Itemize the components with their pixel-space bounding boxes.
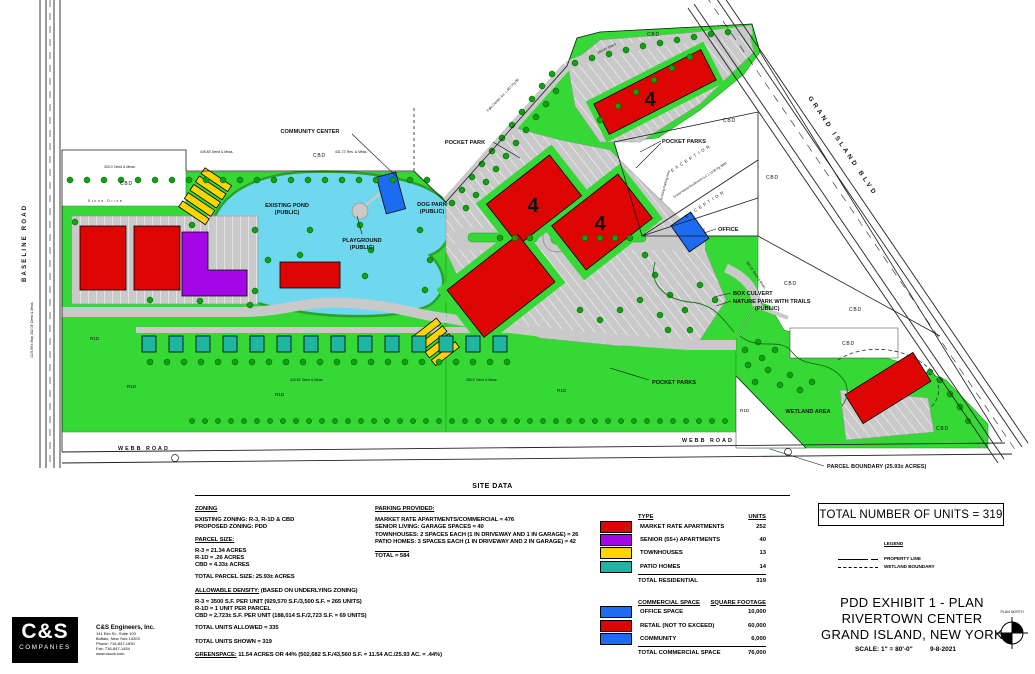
exception-label: EXCEPTION	[684, 189, 727, 219]
commercial-row-value: 6,000	[751, 636, 766, 642]
dimension-text: 431.72' Res. & Meas.	[335, 150, 367, 154]
map-label-nature-park: NATURE PARK WITH TRAILS	[733, 299, 811, 305]
unit-table-row: MARKET RATE APARTMENTS 252	[600, 520, 766, 533]
map-label-playground: PLAYGROUND	[342, 238, 381, 244]
total-units-allowed: TOTAL UNITS ALLOWED = 335	[195, 625, 442, 632]
deed-note: Falls Center, Inc. L 857 Pg 88	[486, 78, 520, 113]
map-label-existing-pond-public: (PUBLIC)	[275, 210, 300, 216]
patio-home-swatch	[600, 561, 632, 573]
dimension-text: 435.83' Deed & Meas.	[200, 150, 234, 154]
scale-note: SCALE: 1" = 80'-0"	[855, 646, 913, 653]
wetland-boundary-sample	[838, 567, 878, 568]
unit-row-value: 14	[759, 564, 766, 570]
map-label-dog-park-public: (PUBLIC)	[420, 209, 445, 215]
map-label-pocket-park: POCKET PARK	[445, 140, 485, 146]
zone-label-r1d: R1D	[557, 388, 567, 393]
unit-table-header-units: UNITS	[748, 514, 766, 520]
zone-label-cbd: CBD	[784, 281, 797, 287]
parking-line: PATIO HOMES: 3 SPACES EACH (1 IN DRIVEWA…	[375, 539, 578, 546]
firm-info: C&S Engineers, Inc. 141 Elm St., Suite 1…	[96, 624, 155, 657]
map-label-pocket-parks-north: POCKET PARKS	[662, 139, 706, 145]
dimension-text: 418.82' Deed & Meas.	[290, 378, 324, 382]
total-residential-label: TOTAL RESIDENTIAL	[638, 578, 756, 584]
site-plan-map: COMMUNITY CENTER POCKET PARK POCKET PARK…	[0, 0, 1035, 492]
zone-label-cbd: CBD	[936, 426, 949, 432]
commercial-table-row: RETAIL (NOT TO EXCEED) 60,000	[600, 619, 766, 632]
north-arrow: PLAN NORTH	[992, 606, 1032, 656]
unit-row-value: 40	[759, 537, 766, 543]
existing-parking-note: Existing Parking Area	[659, 170, 671, 201]
legend-heading: LEGEND	[884, 541, 903, 546]
zone-label-cbd: CBD	[313, 153, 326, 159]
community-swatch	[600, 633, 632, 645]
road-label-baseline: BASELINE ROAD	[22, 204, 28, 282]
north-arrow-label: PLAN NORTH	[1000, 610, 1024, 614]
density-line: R-1D = 1 UNIT PER PARCEL	[195, 606, 442, 613]
map-label-playground-public: (PUBLIC)	[350, 245, 375, 251]
road-label-webb-west: WEBB ROAD	[118, 446, 170, 452]
map-label-pocket-parks-south: POCKET PARKS	[652, 380, 696, 386]
firm-logo-mark: C&S	[12, 620, 78, 644]
unit-table-row: PATIO HOMES 14	[600, 560, 766, 573]
map-label-wetland-area: WETLAND AREA	[785, 409, 830, 415]
firm-logo: C&S COMPANIES	[12, 617, 78, 663]
dimension-text: 1105.99'± Map 332.09' Deed & Meas.	[30, 302, 34, 358]
baseline-road	[40, 0, 60, 468]
parking-column: PARKING PROVIDED: MARKET RATE APARTMENTS…	[375, 506, 578, 560]
map-label-community-center: COMMUNITY CENTER	[281, 129, 340, 135]
greenspace-line: GREENSPACE: 11.54 ACRES OR 44% (502,682 …	[195, 652, 442, 659]
map-label-box-culvert: BOX CULVERT	[733, 291, 773, 297]
total-residential-row: TOTAL RESIDENTIAL 319	[638, 574, 766, 588]
office-swatch	[600, 606, 632, 618]
townhouse-swatch	[600, 547, 632, 559]
unit-table-header-type: TYPE	[638, 514, 748, 520]
map-label-nature-park-public: (PUBLIC)	[755, 306, 780, 312]
commercial-row-value: 60,000	[748, 623, 766, 629]
unit-row-label: PATIO HOMES	[640, 564, 759, 570]
density-line: R-3 = 3500 S.F. PER UNIT (929,570 S.F./3…	[195, 599, 442, 606]
commercial-table-row: COMMUNITY 6,000	[600, 632, 766, 645]
site-data-divider	[195, 495, 790, 496]
zone-label-cbd: CBD	[766, 175, 779, 181]
greenspace-text: 11.54 ACRES OR 44% (502,682 S.F./43,560 …	[237, 652, 442, 658]
commercial-row-label: RETAIL (NOT TO EXCEED)	[640, 623, 748, 629]
zone-label-cbd: CBD	[849, 307, 862, 313]
site-data-title: SITE DATA	[195, 483, 790, 490]
building-story-label: 4	[594, 213, 606, 235]
zone-label-r1d: R1D	[90, 336, 100, 341]
total-units-summary-box: TOTAL NUMBER OF UNITS = 319	[818, 503, 1004, 526]
senior-swatch	[600, 534, 632, 546]
zone-label-cbd: CBD	[120, 181, 133, 187]
total-units-shown: TOTAL UNITS SHOWN = 319	[195, 639, 442, 646]
parcel-size-line: CBD = 4.33± ACRES	[195, 562, 442, 569]
firm-logo-word: COMPANIES	[12, 644, 78, 652]
zone-label-cbd: CBD	[647, 32, 660, 38]
greenspace-label: GREENSPACE:	[195, 652, 237, 658]
allowable-density-heading: ALLOWABLE DENSITY: (BASED ON UNDERLYING …	[195, 588, 442, 595]
firm-website: www.cscos.com	[96, 652, 155, 657]
market-rate-swatch	[600, 521, 632, 533]
parking-heading: PARKING PROVIDED:	[375, 506, 578, 513]
dimension-text: 285.6' Deed & Meas.	[466, 378, 498, 382]
parking-line: SENIOR LIVING: GARAGE SPACES = 40	[375, 524, 578, 531]
map-label-parcel-boundary: PARCEL BOUNDARY (25.93± ACRES)	[827, 464, 926, 470]
property-line-sample-dash	[871, 559, 878, 560]
unit-row-value: 13	[759, 550, 766, 556]
property-line-sample	[838, 559, 868, 560]
commercial-row-value: 10,000	[748, 609, 766, 615]
commercial-table-row: OFFICE SPACE 10,000	[600, 606, 766, 619]
site-plan-sheet: { "map": { "roads": { "baseline": "BASEL…	[0, 0, 1035, 674]
total-commercial-label: TOTAL COMMERCIAL SPACE	[638, 650, 748, 656]
sheet-date: 9-8-2021	[930, 646, 956, 653]
map-label-dog-park: DOG PARK	[417, 202, 447, 208]
zone-label-cbd: CBD	[723, 118, 736, 124]
total-commercial-row: TOTAL COMMERCIAL SPACE 76,000	[638, 646, 766, 660]
commercial-table-header-sqft: SQUARE FOOTAGE	[710, 600, 766, 606]
retail-swatch	[600, 620, 632, 632]
unit-row-value: 252	[756, 524, 766, 530]
unit-row-label: TOWNHOUSES	[640, 550, 759, 556]
commercial-table-header-space: COMMERCIAL SPACE	[638, 600, 710, 606]
zone-label-cbd: CBD	[842, 341, 855, 347]
zone-label-r1d: R1D	[740, 408, 750, 413]
total-residential-value: 319	[756, 578, 766, 584]
building-story-label: 4	[644, 89, 656, 111]
unit-type-table: TYPE UNITS MARKET RATE APARTMENTS 252 SE…	[600, 508, 766, 660]
street-label-stone-drive: Stone Drive	[88, 199, 123, 203]
zone-label-r1d: R1D	[275, 392, 285, 397]
zone-label-r1d: R1D	[127, 384, 137, 389]
allowable-density-label: ALLOWABLE DENSITY:	[195, 588, 259, 594]
legend-property-line-label: PROPERTY LINE	[884, 556, 921, 561]
total-parcel-size: TOTAL PARCEL SIZE: 25.93± ACRES	[195, 574, 442, 581]
unit-table-row: SENIOR (55+) APARTMENTS 40	[600, 533, 766, 546]
unit-table-row: TOWNHOUSES 13	[600, 547, 766, 560]
density-line: CBD = 2,723± S.F. PER UNIT (188,014 S.F.…	[195, 613, 442, 620]
parking-line: MARKET RATE APARTMENTS/COMMERCIAL = 476	[375, 517, 578, 524]
unit-row-label: MARKET RATE APARTMENTS	[640, 524, 756, 530]
commercial-row-label: COMMUNITY	[640, 636, 751, 642]
commercial-row-label: OFFICE SPACE	[640, 609, 748, 615]
map-label-existing-pond: EXISTING POND	[265, 203, 309, 209]
building-story-label: 4	[527, 195, 539, 217]
allowable-density-note: (BASED ON UNDERLYING ZONING)	[259, 588, 357, 594]
dimension-text: 300.0' Deed & Meas.	[104, 165, 136, 169]
road-label-webb-east: WEBB ROAD	[682, 438, 734, 444]
map-label-office: OFFICE	[718, 227, 739, 233]
total-commercial-value: 76,000	[748, 650, 766, 656]
unit-row-label: SENIOR (55+) APARTMENTS	[640, 537, 759, 543]
legend-wetland-boundary-label: WETLAND BOUNDARY	[884, 564, 935, 569]
parking-line: TOWNHOUSES: 2 SPACES EACH (1 IN DRIVEWAY…	[375, 532, 578, 539]
parking-total: TOTAL = 584	[375, 551, 409, 560]
exception-label: EXCEPTION	[670, 143, 713, 173]
